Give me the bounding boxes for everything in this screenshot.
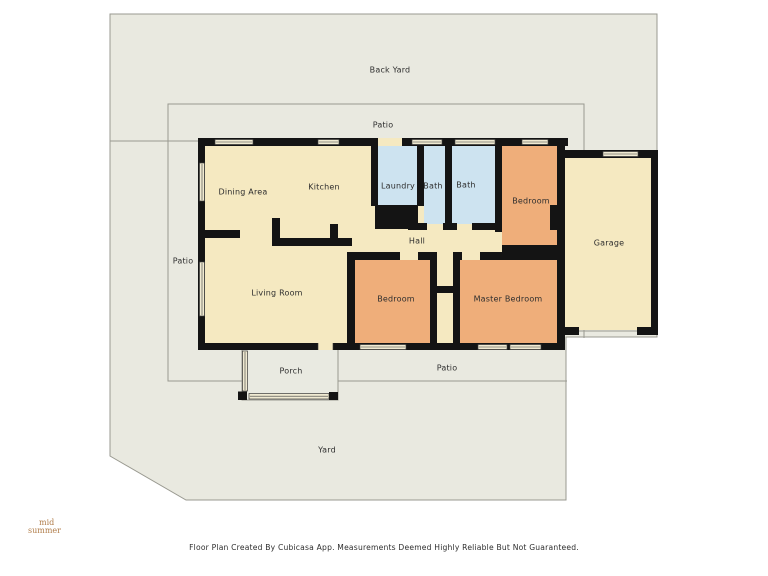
window [200, 262, 205, 316]
label-bath-1: Bath [423, 182, 442, 191]
label-bedroom-bottom: Bedroom [377, 295, 415, 304]
label-patio-bottom: Patio [437, 364, 458, 373]
lot-cutout [567, 338, 768, 576]
footer-disclaimer: Floor Plan Created By Cubicasa App. Meas… [0, 543, 768, 552]
label-master-bedroom: Master Bedroom [474, 295, 543, 304]
porch-post [329, 392, 338, 400]
midsummer-logo: mid summer [28, 519, 61, 535]
label-laundry: Laundry [381, 182, 415, 191]
label-patio-left: Patio [173, 257, 194, 266]
window [478, 345, 507, 350]
window [318, 140, 339, 145]
front-door-opening [318, 343, 333, 350]
wall-opening [378, 138, 402, 146]
label-porch: Porch [279, 367, 302, 376]
window [603, 152, 638, 157]
window [215, 140, 253, 145]
window [510, 345, 541, 350]
label-yard: Yard [318, 446, 336, 455]
label-hall: Hall [409, 237, 425, 246]
label-garage: Garage [594, 239, 625, 248]
window [412, 140, 442, 145]
label-kitchen: Kitchen [308, 183, 339, 192]
floor-plan-page: Back Yard Patio Dining Area Kitchen Laun… [0, 0, 768, 576]
label-bath-2: Bath [456, 181, 475, 190]
label-dining-area: Dining Area [219, 188, 268, 197]
label-patio-top: Patio [373, 121, 394, 130]
logo-line-2: summer [28, 527, 61, 535]
label-back-yard: Back Yard [370, 66, 411, 75]
window [360, 345, 406, 350]
window [455, 140, 495, 145]
laundry-floor [378, 146, 417, 206]
window [200, 163, 205, 201]
label-bedroom-top: Bedroom [512, 197, 550, 206]
window [522, 140, 548, 145]
floor-plan-drawing [0, 0, 768, 576]
porch-post [238, 392, 247, 401]
label-living-room: Living Room [251, 289, 302, 298]
